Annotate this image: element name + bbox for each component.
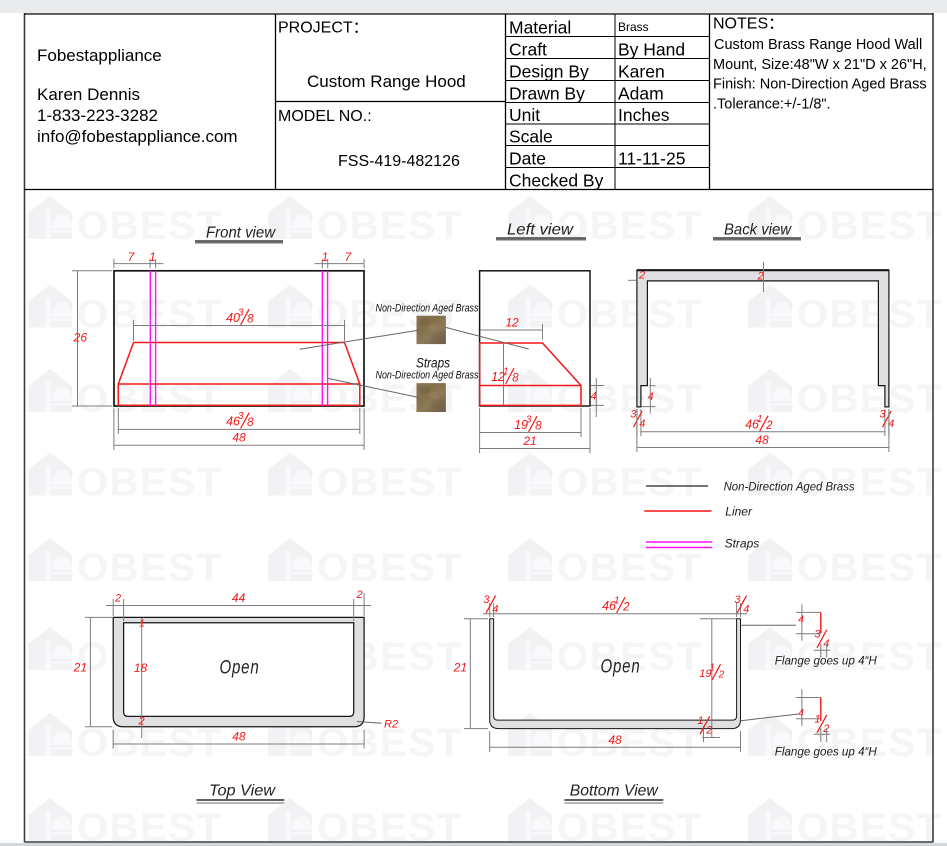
svg-text:2: 2 — [355, 589, 362, 601]
svg-text:4: 4 — [798, 614, 804, 626]
svg-text:Karen Dennis: Karen Dennis — [37, 85, 140, 104]
svg-text:2: 2 — [822, 723, 829, 735]
svg-text:3: 3 — [630, 409, 637, 421]
svg-text:44: 44 — [232, 591, 246, 605]
svg-text:2: 2 — [137, 716, 144, 728]
svg-text:Finish: Non-Direction Aged Bra: Finish: Non-Direction Aged Brass — [713, 77, 927, 93]
svg-text:Custom Brass Range Hood Wall: Custom Brass Range Hood Wall — [714, 37, 922, 53]
svg-text:Front view: Front view — [206, 225, 276, 242]
svg-text:Non-Direction Aged Brass: Non-Direction Aged Brass — [376, 303, 479, 315]
svg-text:Date: Date — [509, 149, 546, 169]
svg-text:2: 2 — [765, 420, 773, 432]
svg-text:4: 4 — [590, 391, 596, 403]
svg-text:21: 21 — [522, 434, 536, 448]
svg-text:Checked By: Checked By — [509, 171, 604, 191]
svg-text:Custom Range Hood: Custom Range Hood — [307, 72, 466, 91]
svg-text:21: 21 — [73, 661, 87, 675]
svg-text:R2: R2 — [384, 719, 398, 731]
svg-text:Bottom View: Bottom View — [570, 783, 659, 800]
svg-text:48: 48 — [608, 733, 622, 747]
svg-text:3: 3 — [526, 415, 532, 426]
svg-text:26: 26 — [73, 331, 88, 345]
svg-text:48: 48 — [232, 730, 246, 744]
svg-text:8: 8 — [247, 314, 254, 326]
svg-text:Flange goes up 4“H: Flange goes up 4“H — [775, 745, 877, 759]
svg-text:2: 2 — [705, 725, 712, 737]
svg-text:Flange goes up 4“H: Flange goes up 4“H — [775, 654, 877, 668]
svg-text:21: 21 — [453, 661, 467, 675]
svg-text:2: 2 — [638, 270, 645, 282]
svg-text:Left view: Left view — [507, 222, 575, 239]
svg-text:4: 4 — [647, 391, 653, 403]
svg-text:Mount, Size:48"W x 21"D x 26"H: Mount, Size:48"W x 21"D x 26"H, — [713, 57, 927, 73]
svg-text:1: 1 — [139, 618, 145, 630]
svg-text:4: 4 — [492, 604, 498, 616]
svg-text:PROJECT：: PROJECT： — [278, 20, 369, 37]
svg-text:Top View: Top View — [209, 783, 276, 800]
svg-text:12: 12 — [505, 316, 519, 330]
svg-text:1: 1 — [149, 250, 156, 264]
svg-text:Straps: Straps — [416, 356, 450, 371]
svg-text:8: 8 — [512, 373, 519, 385]
svg-text:Fobestappliance: Fobestappliance — [37, 46, 162, 65]
svg-text:Drawn By: Drawn By — [509, 84, 585, 104]
svg-text:8: 8 — [247, 417, 254, 429]
svg-text:.Tolerance:+/-1/8".: .Tolerance:+/-1/8". — [713, 96, 831, 112]
svg-text:1: 1 — [814, 714, 820, 726]
svg-text:2: 2 — [756, 271, 763, 283]
svg-text:Inches: Inches — [618, 105, 670, 125]
svg-text:4: 4 — [798, 707, 804, 719]
svg-text:Scale: Scale — [509, 127, 553, 147]
svg-text:Craft: Craft — [509, 40, 547, 60]
svg-text:1: 1 — [710, 663, 715, 674]
svg-text:1: 1 — [697, 715, 703, 727]
svg-text:1: 1 — [503, 367, 508, 378]
svg-text:3: 3 — [238, 308, 244, 319]
svg-text:Open: Open — [220, 658, 260, 679]
svg-text:FSS-419-482126: FSS-419-482126 — [338, 153, 460, 170]
svg-text:1: 1 — [757, 414, 762, 425]
svg-text:3: 3 — [814, 629, 821, 641]
svg-text:8: 8 — [535, 421, 542, 433]
svg-text:Non-Direction Aged Brass: Non-Direction Aged Brass — [724, 480, 855, 494]
svg-text:48: 48 — [755, 433, 769, 447]
svg-text:3: 3 — [483, 594, 490, 606]
svg-text:By Hand: By Hand — [618, 40, 685, 60]
svg-text:Straps: Straps — [725, 537, 760, 551]
svg-text:Karen: Karen — [618, 62, 665, 82]
svg-text:2: 2 — [718, 670, 725, 681]
svg-text:Open: Open — [601, 657, 641, 678]
svg-text:Brass: Brass — [618, 20, 649, 34]
svg-text:3: 3 — [734, 594, 741, 606]
svg-text:2: 2 — [622, 602, 630, 614]
svg-text:Back view: Back view — [724, 222, 792, 239]
svg-text:3: 3 — [238, 411, 244, 422]
svg-text:2: 2 — [114, 593, 121, 605]
svg-text:Adam: Adam — [618, 84, 664, 104]
svg-text:Non-Direction Aged Brass: Non-Direction Aged Brass — [376, 370, 479, 382]
svg-text:1-833-223-3282: 1-833-223-3282 — [37, 106, 158, 125]
svg-text:48: 48 — [232, 431, 246, 445]
svg-text:4: 4 — [639, 418, 645, 430]
svg-text:Liner: Liner — [725, 505, 753, 519]
svg-text:11-11-25: 11-11-25 — [618, 149, 685, 169]
svg-text:3: 3 — [879, 409, 886, 421]
svg-text:18: 18 — [134, 661, 148, 675]
svg-text:MODEL NO.:: MODEL NO.: — [278, 108, 372, 125]
svg-text:1: 1 — [322, 250, 329, 264]
svg-text:1: 1 — [614, 596, 619, 607]
svg-text:Unit: Unit — [509, 105, 540, 125]
svg-text:Material: Material — [509, 18, 571, 38]
svg-text:NOTES：: NOTES： — [713, 16, 784, 33]
svg-text:4: 4 — [743, 604, 749, 616]
svg-text:Design By: Design By — [509, 62, 589, 82]
svg-text:info@fobestappliance.com: info@fobestappliance.com — [37, 127, 238, 146]
